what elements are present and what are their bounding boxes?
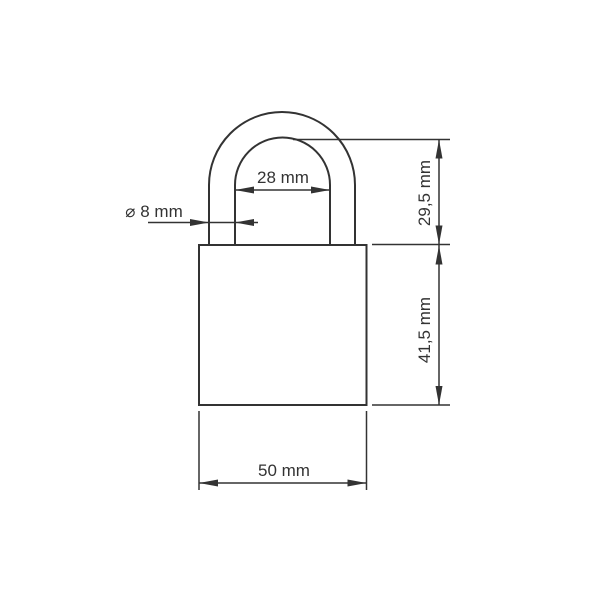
arrow-left-icon — [235, 219, 254, 226]
padlock-outline — [199, 112, 367, 405]
arrow-down-icon — [436, 386, 443, 405]
dim-label-shackle-diameter: ⌀ 8 mm — [125, 202, 182, 221]
dim-label-body-width: 50 mm — [258, 461, 310, 480]
padlock-drawing: 28 mm ⌀ 8 mm 29,5 mm 41,5 mm — [0, 0, 600, 600]
arrow-right-icon — [190, 219, 209, 226]
padlock-body — [199, 245, 367, 405]
technical-drawing-canvas: 28 mm ⌀ 8 mm 29,5 mm 41,5 mm — [0, 0, 600, 600]
dimension-body-height: 41,5 mm — [372, 245, 450, 406]
dimension-body-width: 50 mm — [199, 411, 367, 490]
arrow-right-icon — [348, 480, 367, 487]
dim-label-shackle-height: 29,5 mm — [415, 160, 434, 226]
arrow-right-icon — [311, 187, 330, 194]
arrow-left-icon — [199, 480, 218, 487]
dim-label-shackle-inner-width: 28 mm — [257, 168, 309, 187]
arrow-up-icon — [436, 246, 443, 265]
arrow-down-icon — [436, 226, 443, 245]
arrow-left-icon — [235, 187, 254, 194]
dimension-shackle-diameter: ⌀ 8 mm — [125, 202, 258, 226]
arrow-up-icon — [436, 140, 443, 159]
dimension-shackle-inner-width: 28 mm — [235, 168, 330, 194]
dim-label-body-height: 41,5 mm — [415, 297, 434, 363]
